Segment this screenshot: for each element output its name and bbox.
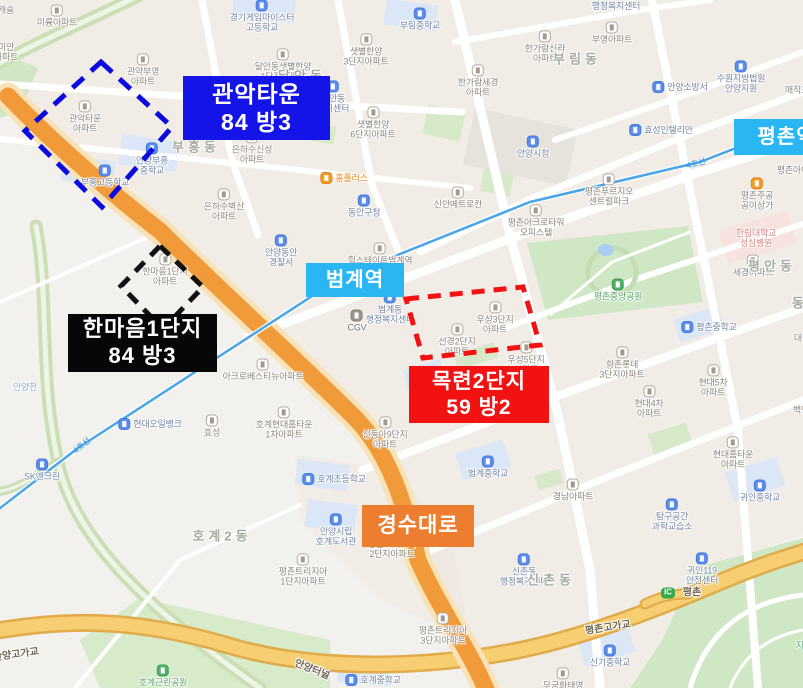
public-building-icon <box>358 194 370 206</box>
map-poi-label: 귀인중학교 <box>740 479 780 502</box>
school-icon <box>146 142 158 154</box>
district-label: 부흥동 <box>172 141 220 156</box>
map-poi-label: 신기중학교 <box>590 644 630 667</box>
school-icon <box>604 644 616 656</box>
road-name-label: 평촌 <box>683 587 701 598</box>
apartment-icon <box>374 242 386 254</box>
annotation-title: 관악타운 <box>183 80 330 108</box>
apartment-icon <box>606 21 618 33</box>
district-label: 호계2동 <box>192 530 251 545</box>
road-badge-label: 경수대로 <box>362 513 474 539</box>
district-label: 신촌동 <box>527 574 575 589</box>
map-poi-label: 향촌롯데3단지아파트 <box>599 346 644 379</box>
public-building-icon <box>735 60 747 72</box>
map-poi-label: 부림중학교 <box>400 7 440 30</box>
apartment-icon <box>79 100 91 112</box>
public-building-icon <box>527 135 539 147</box>
station-badge-pyeongchon: 평촌역 <box>734 119 803 155</box>
apartment-icon <box>367 106 379 118</box>
map-poi-label: 부영아파트 <box>592 21 632 44</box>
road-name-label: 안양고가교 <box>0 646 40 663</box>
annotation-mokryeon-2danji: 목련2단지 59 방2 <box>409 366 549 423</box>
apartment-icon <box>297 553 309 565</box>
public-building-icon <box>275 234 287 246</box>
map-poi-label: 호계현대홈타운1차아파트 <box>256 406 313 439</box>
map-poi-label: 백영 <box>793 405 803 415</box>
station-badge-beomgye: 범계역 <box>306 263 404 297</box>
apartment-icon <box>727 436 739 448</box>
public-building-icon <box>696 552 708 564</box>
apartment-icon <box>451 323 463 335</box>
map-poi-label: 효성인텔리안 <box>629 124 692 136</box>
annotation-hanmaeum-1danji: 한마음1단지 84 방3 <box>68 314 217 372</box>
map-canvas[interactable]: 캐슬미륭아파트미안아파트경기게임마이스터고등학교부림중학교행정복지센터부영아파트… <box>0 0 803 688</box>
public-building-icon <box>666 498 678 510</box>
apartment-icon <box>616 346 628 358</box>
map-poi-label: 선경2단지아파트 <box>438 323 475 356</box>
park-icon <box>612 278 624 290</box>
map-poi-label: 샛별한양3단지아파트 <box>343 33 388 66</box>
annotation-spec: 84 방3 <box>68 343 217 370</box>
map-poi-label: 평촌아크로타워오피스텔 <box>508 204 565 237</box>
map-poi-label: 현대홈타운아파트 <box>713 436 753 469</box>
apartment-icon <box>530 204 542 216</box>
map-poi-label: 현대오일뱅크 <box>118 418 181 430</box>
map-poi-label: 동안구청 <box>348 194 380 217</box>
map-poi-label: 호계중학교 <box>345 674 400 686</box>
apartment-icon <box>137 53 149 65</box>
apartment-icon <box>437 612 449 624</box>
map-poi-label: 경기게임마이스터고등학교 <box>230 0 295 33</box>
annotation-title: 한마음1단지 <box>68 316 217 343</box>
map-poi-label: 평촌트리지아3단지아파트 <box>419 612 467 645</box>
map-poi-label: 한가람세경아파트 <box>458 64 498 97</box>
annotation-title: 목련2단지 <box>409 369 549 395</box>
school-icon <box>681 321 693 333</box>
public-building-icon <box>118 418 130 430</box>
district-label: 동안 <box>792 297 803 312</box>
apartment-icon <box>520 341 532 353</box>
map-poi-label: 수원지방법원안양지원 <box>717 60 765 93</box>
map-poi-label: 홈플러스 <box>320 172 367 184</box>
road-name-label: 평촌고가교 <box>584 619 631 637</box>
apartment-icon <box>452 186 464 198</box>
map-poi-label: 행정복지센터 <box>592 1 640 11</box>
map-poi-label: 평촌푸르지오센트럴파크 <box>585 173 633 206</box>
map-poi-label: 샛별한양6단지아파트 <box>350 106 395 139</box>
store-icon <box>751 177 763 189</box>
map-poi-label: CGV <box>348 309 367 332</box>
school-icon <box>302 473 314 485</box>
district-label: 평안동 <box>748 260 796 275</box>
annotation-gwanak-town: 관악타운 84 방3 <box>183 76 330 140</box>
apartment-icon <box>707 364 719 376</box>
map-poi-label: 미륭아파트 <box>37 4 77 27</box>
map-poi-label: 평촌아이파크 <box>777 165 803 175</box>
subway-line-label: 4호선 <box>71 436 92 456</box>
map-poi-label: 경남아파트 <box>553 478 593 501</box>
map-poi-label: 신안메트로칸 <box>434 186 482 209</box>
map-poi-label: 은하수벽산아파트 <box>204 188 244 221</box>
public-building-icon <box>330 513 342 525</box>
map-poi-label: 부흥고등학교 <box>81 164 129 187</box>
school-icon <box>482 455 494 467</box>
apartment-icon <box>489 301 501 313</box>
map-poi-label: 안양부흥중학교 <box>136 142 168 175</box>
annotation-spec: 59 방2 <box>409 395 549 421</box>
district-label: 부림동 <box>553 53 601 68</box>
map-poi-label: 현대4차아파트 <box>634 385 663 418</box>
map-poi-label: 우성3단지아파트 <box>476 301 513 334</box>
map-poi-label: 효성 <box>204 414 220 437</box>
apartment-icon <box>206 414 218 426</box>
apartment-icon <box>257 358 269 370</box>
map-poi-label: 호계초등학교 <box>302 473 365 485</box>
public-building-icon <box>36 458 48 470</box>
park-icon <box>157 664 169 676</box>
map-poi-label: 안양천 <box>13 382 37 392</box>
school-icon <box>345 674 357 686</box>
public-building-icon <box>518 553 530 565</box>
apartment-icon <box>567 478 579 490</box>
map-poi-label: 매직포 <box>785 85 803 95</box>
apartment-icon <box>603 173 615 185</box>
map-poi-label: 무궁화태영아파트 <box>543 667 583 688</box>
apartment-icon <box>643 385 655 397</box>
apartment-icon <box>218 188 230 200</box>
map-poi-label: 귀인119안전센터 <box>686 552 718 585</box>
map-poi-label: 자유공원 <box>796 627 803 650</box>
map-poi-label: 안양동안경찰서 <box>265 234 297 267</box>
map-poi-label: 평촌중학교 <box>681 321 736 333</box>
school-icon <box>754 479 766 491</box>
ic-badge: IC <box>661 588 675 599</box>
map-poi-label: 관악타운아파트 <box>69 100 101 133</box>
map-poi-label: 미안아파트 <box>0 42 18 62</box>
apartment-icon <box>277 48 289 60</box>
apartment-icon <box>557 667 569 679</box>
map-poi-label: 범계중학교 <box>468 455 508 478</box>
map-poi-label: 신동아9단지아파트 <box>362 416 407 449</box>
map-poi-label: 안양시청 <box>517 135 549 158</box>
annotation-spec: 84 방3 <box>183 108 330 136</box>
road-name-label: 안양터널 <box>293 658 331 682</box>
subway-line-label: 4호선 <box>685 157 706 171</box>
map-poi-label: 관악부영아파트 <box>127 53 159 86</box>
public-building-icon <box>629 124 641 136</box>
apartment-icon <box>539 30 551 42</box>
map-poi-label: SK엔크린 <box>24 458 60 481</box>
apartment-icon <box>159 253 171 265</box>
map-poi-label: 탐구공간과학교습소 <box>652 498 692 531</box>
school-icon <box>414 7 426 19</box>
map-poi-label: 평촌중앙공원 <box>594 278 642 301</box>
public-building-icon <box>652 81 664 93</box>
map-poi-label: 평촌트리지아1단지아파트 <box>279 553 327 586</box>
map-poi-label: 안양시립호계도서관 <box>316 513 356 546</box>
map-poi-label: 현대5차아파트 <box>698 364 727 397</box>
map-poi-label: 한마음1단지아파트 <box>142 253 187 286</box>
school-icon <box>256 0 268 11</box>
store-icon <box>320 172 332 184</box>
poi-icon <box>351 309 363 321</box>
annotation-gyeongsu-daero: 경수대로 <box>362 505 474 547</box>
apartment-icon <box>379 416 391 428</box>
map-poi-label: 안양소방서 <box>652 81 707 93</box>
map-poi-label: 평촌주공공이상가 <box>741 177 773 210</box>
station-badge-label: 범계역 <box>306 268 404 292</box>
map-poi-label: 캐슬 <box>0 5 14 15</box>
school-icon <box>99 164 111 176</box>
apartment-icon <box>278 406 290 418</box>
map-poi-label: 대림아 <box>794 333 803 343</box>
apartment-icon <box>51 4 63 16</box>
map-poi-label: 호계근린공원 <box>139 664 187 687</box>
apartment-icon <box>360 33 372 45</box>
map-poi-label: 아크로베스티뉴아파트 <box>223 358 304 381</box>
map-poi-label: 한림대학교성심병원 <box>736 228 776 248</box>
apartment-icon <box>472 64 484 76</box>
station-badge-label: 평촌역 <box>734 125 803 149</box>
